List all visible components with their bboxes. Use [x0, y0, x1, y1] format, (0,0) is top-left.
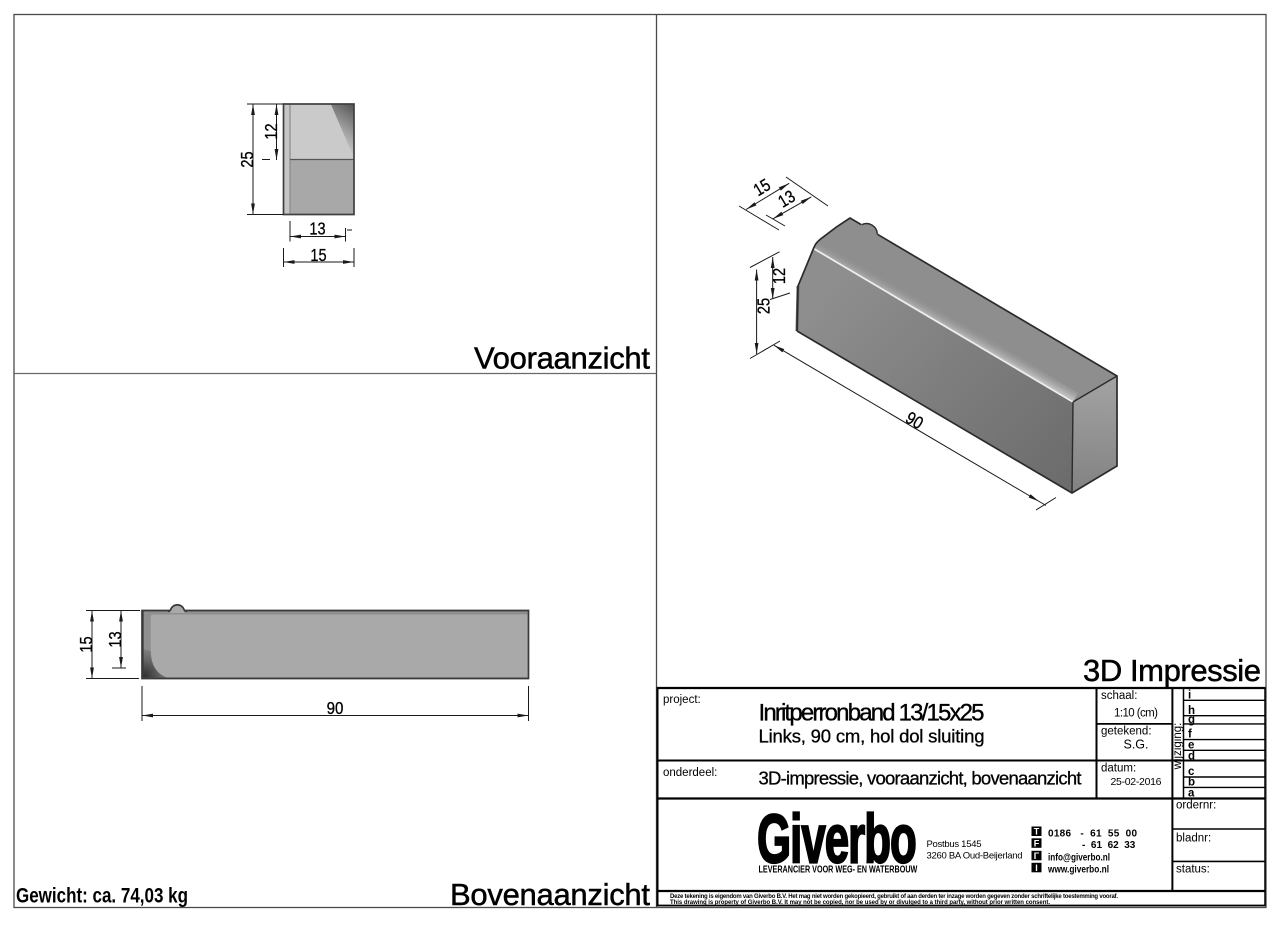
- svg-text:g: g: [1188, 714, 1195, 726]
- svg-text:www.giverbo.nl: www.giverbo.nl: [1047, 865, 1109, 876]
- svg-text:13: 13: [105, 631, 125, 647]
- svg-text:25-02-2016: 25-02-2016: [1111, 776, 1162, 788]
- svg-text:Bovenaanzicht: Bovenaanzicht: [450, 877, 650, 912]
- svg-text:Inritperronband 13/15x25: Inritperronband 13/15x25: [759, 700, 985, 727]
- svg-text:onderdeel:: onderdeel:: [663, 767, 717, 779]
- svg-text:12: 12: [261, 123, 281, 139]
- svg-text:25: 25: [754, 298, 774, 314]
- svg-text:bladnr:: bladnr:: [1176, 833, 1211, 845]
- svg-text:d: d: [1188, 751, 1195, 763]
- svg-text:1:10 (cm): 1:10 (cm): [1114, 708, 1158, 720]
- svg-text:13: 13: [309, 219, 325, 239]
- svg-text:Vooraanzicht: Vooraanzicht: [474, 341, 650, 376]
- svg-text:12: 12: [769, 268, 789, 284]
- svg-text:0186 - 61 55 00: 0186 - 61 55 00: [1048, 829, 1137, 840]
- svg-text:S.G.: S.G.: [1123, 738, 1148, 752]
- svg-text:15: 15: [310, 245, 326, 265]
- svg-text:3D Impressie: 3D Impressie: [1083, 653, 1261, 688]
- svg-text:Deze tekening is eigendom van: Deze tekening is eigendom van Giverbo B.…: [670, 894, 1118, 900]
- svg-text:This drawing is property of Gi: This drawing is property of Giverbo B.V.…: [670, 900, 1050, 906]
- svg-text:info@giverbo.nl: info@giverbo.nl: [1048, 853, 1110, 864]
- svg-text:Links, 90 cm, hol dol sluiting: Links, 90 cm, hol dol sluiting: [759, 726, 985, 747]
- svg-text:i: i: [1188, 690, 1191, 702]
- svg-text:F: F: [1034, 838, 1040, 848]
- svg-text:ordernr:: ordernr:: [1176, 800, 1216, 812]
- svg-text:status:: status:: [1176, 864, 1210, 876]
- svg-text:wijziging:: wijziging:: [1172, 723, 1184, 771]
- svg-text:25: 25: [237, 151, 257, 167]
- svg-text:a: a: [1188, 788, 1195, 800]
- svg-text:T: T: [1034, 827, 1040, 837]
- svg-text:15: 15: [76, 636, 96, 652]
- svg-text:LEVERANCIER VOOR WEG- EN WATER: LEVERANCIER VOOR WEG- EN WATERBOUW: [759, 863, 918, 875]
- svg-text:3D-impressie, vooraanzicht, bo: 3D-impressie, vooraanzicht, bovenaanzich…: [759, 768, 1082, 789]
- svg-text:schaal:: schaal:: [1101, 690, 1137, 702]
- svg-text:I: I: [1035, 863, 1038, 873]
- svg-text:3260 BA Oud-Beijerland: 3260 BA Oud-Beijerland: [927, 851, 1023, 862]
- svg-text:getekend:: getekend:: [1101, 726, 1152, 738]
- svg-text:Postbus 1545: Postbus 1545: [927, 839, 982, 850]
- svg-text:datum:: datum:: [1101, 763, 1136, 775]
- svg-text:project:: project:: [663, 694, 701, 706]
- svg-text:- 61 62 33: - 61 62 33: [1082, 840, 1136, 851]
- svg-text:Γ: Γ: [1034, 851, 1040, 861]
- svg-text:Gewicht: ca. 74,03 kg: Gewicht: ca. 74,03 kg: [16, 885, 188, 908]
- svg-text:90: 90: [327, 698, 344, 718]
